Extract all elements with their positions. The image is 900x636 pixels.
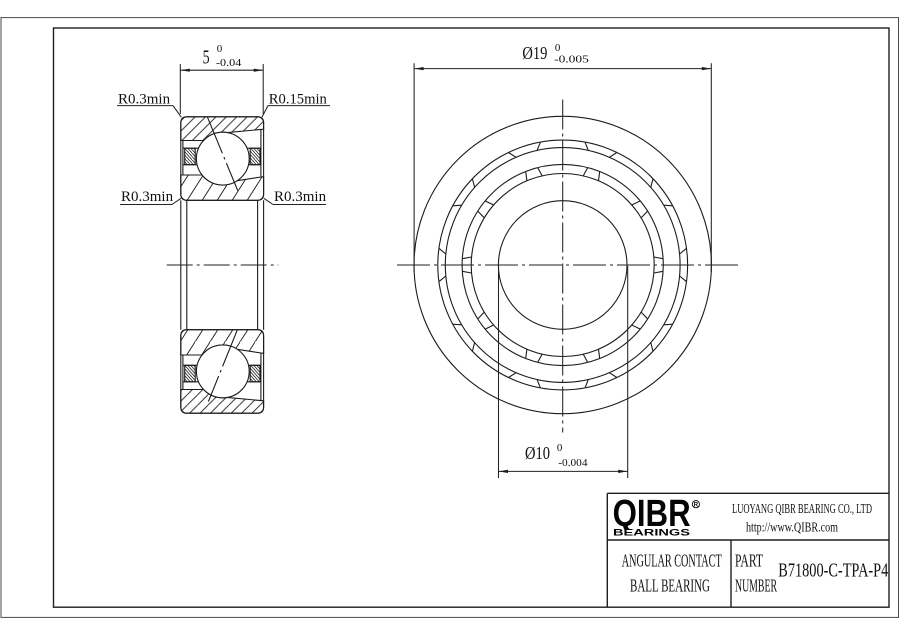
svg-text:ANGULAR CONTACT: ANGULAR CONTACT [622,551,722,571]
svg-text:PART: PART [735,551,763,571]
svg-text:http://www.QIBR.com: http://www.QIBR.com [746,521,838,536]
svg-text:Ø10: Ø10 [525,443,550,463]
svg-text:-0.04: -0.04 [216,57,242,69]
svg-text:0: 0 [555,42,561,54]
svg-text:R0.15min: R0.15min [269,91,327,107]
svg-text:R0.3min: R0.3min [274,189,327,205]
svg-text:R: R [694,503,699,509]
svg-text:0: 0 [557,442,563,454]
svg-text:B71800-C-TPA-P4: B71800-C-TPA-P4 [778,560,888,582]
svg-text:BALL BEARING: BALL BEARING [630,576,710,596]
svg-text:-0.004: -0.004 [558,457,588,469]
svg-text:R0.3min: R0.3min [118,91,171,107]
svg-text:NUMBER: NUMBER [735,576,777,596]
svg-text:LUOYANG QIBR BEARING CO., LTD: LUOYANG QIBR BEARING CO., LTD [732,502,872,517]
svg-text:-0.005: -0.005 [554,53,589,65]
svg-text:0: 0 [217,43,223,55]
svg-text:BEARINGS: BEARINGS [613,527,690,538]
svg-text:5: 5 [203,46,210,68]
svg-text:R0.3min: R0.3min [121,189,174,205]
svg-text:Ø19: Ø19 [522,43,547,63]
